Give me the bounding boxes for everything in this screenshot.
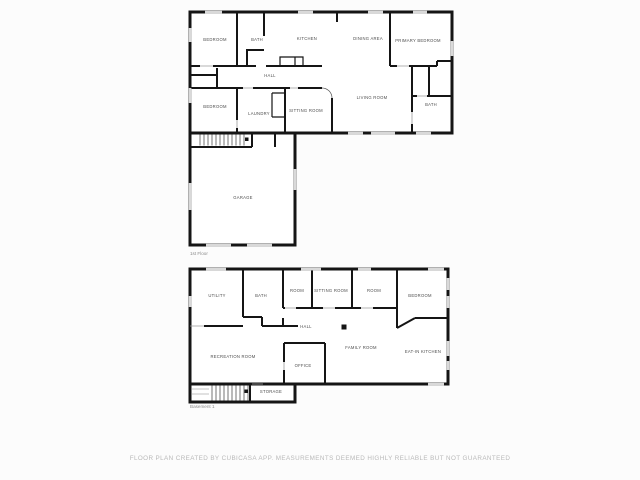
room-label-laundry: LAUNDRY bbox=[248, 112, 270, 116]
room-label-bedroom-1f: BEDROOM bbox=[203, 38, 226, 42]
room-label-room1-basement: ROOM bbox=[290, 289, 304, 293]
room-label-bath-basement: BATH bbox=[255, 294, 267, 298]
room-label-bath2-1f: BATH bbox=[425, 103, 437, 107]
room-label-room2-basement: ROOM bbox=[367, 289, 381, 293]
floorplan-canvas: BEDROOM BATH KITCHEN DINING AREA PRIMARY… bbox=[0, 0, 640, 480]
room-label-hall-basement: HALL bbox=[300, 325, 311, 329]
room-label-primary-bedroom: PRIMARY BEDROOM bbox=[395, 39, 440, 43]
room-label-utility: UTILITY bbox=[208, 294, 225, 298]
room-label-sitting-room-1f: SITTING ROOM bbox=[289, 109, 323, 113]
floor-title-basement: Basement 1 bbox=[190, 405, 215, 410]
floorplan-drawing bbox=[0, 0, 640, 480]
room-label-living-room: LIVING ROOM bbox=[357, 96, 388, 100]
room-label-dining-area: DINING AREA bbox=[353, 37, 383, 41]
room-label-bath-1f: BATH bbox=[251, 38, 263, 42]
room-label-kitchen: KITCHEN bbox=[297, 37, 317, 41]
room-label-family-room: FAMILY ROOM bbox=[345, 346, 376, 350]
room-label-hall-1f: HALL bbox=[264, 74, 275, 78]
room-label-sitting-room-bsmt: SITTING ROOM bbox=[314, 289, 348, 293]
room-label-garage: GARAGE bbox=[233, 196, 252, 200]
room-label-bedroom-basement: BEDROOM bbox=[408, 294, 431, 298]
room-label-bedroom2-1f: BEDROOM bbox=[203, 105, 226, 109]
disclaimer-text: FLOOR PLAN CREATED BY CUBICASA APP. MEAS… bbox=[0, 456, 640, 462]
room-label-eat-in-kitchen: EAT-IN KITCHEN bbox=[405, 350, 441, 354]
floor-title-first: 1st Floor bbox=[190, 252, 208, 257]
room-label-office: OFFICE bbox=[295, 364, 312, 368]
room-label-recreation-room: RECREATION ROOM bbox=[210, 355, 255, 359]
room-label-storage: STORAGE bbox=[260, 390, 282, 394]
